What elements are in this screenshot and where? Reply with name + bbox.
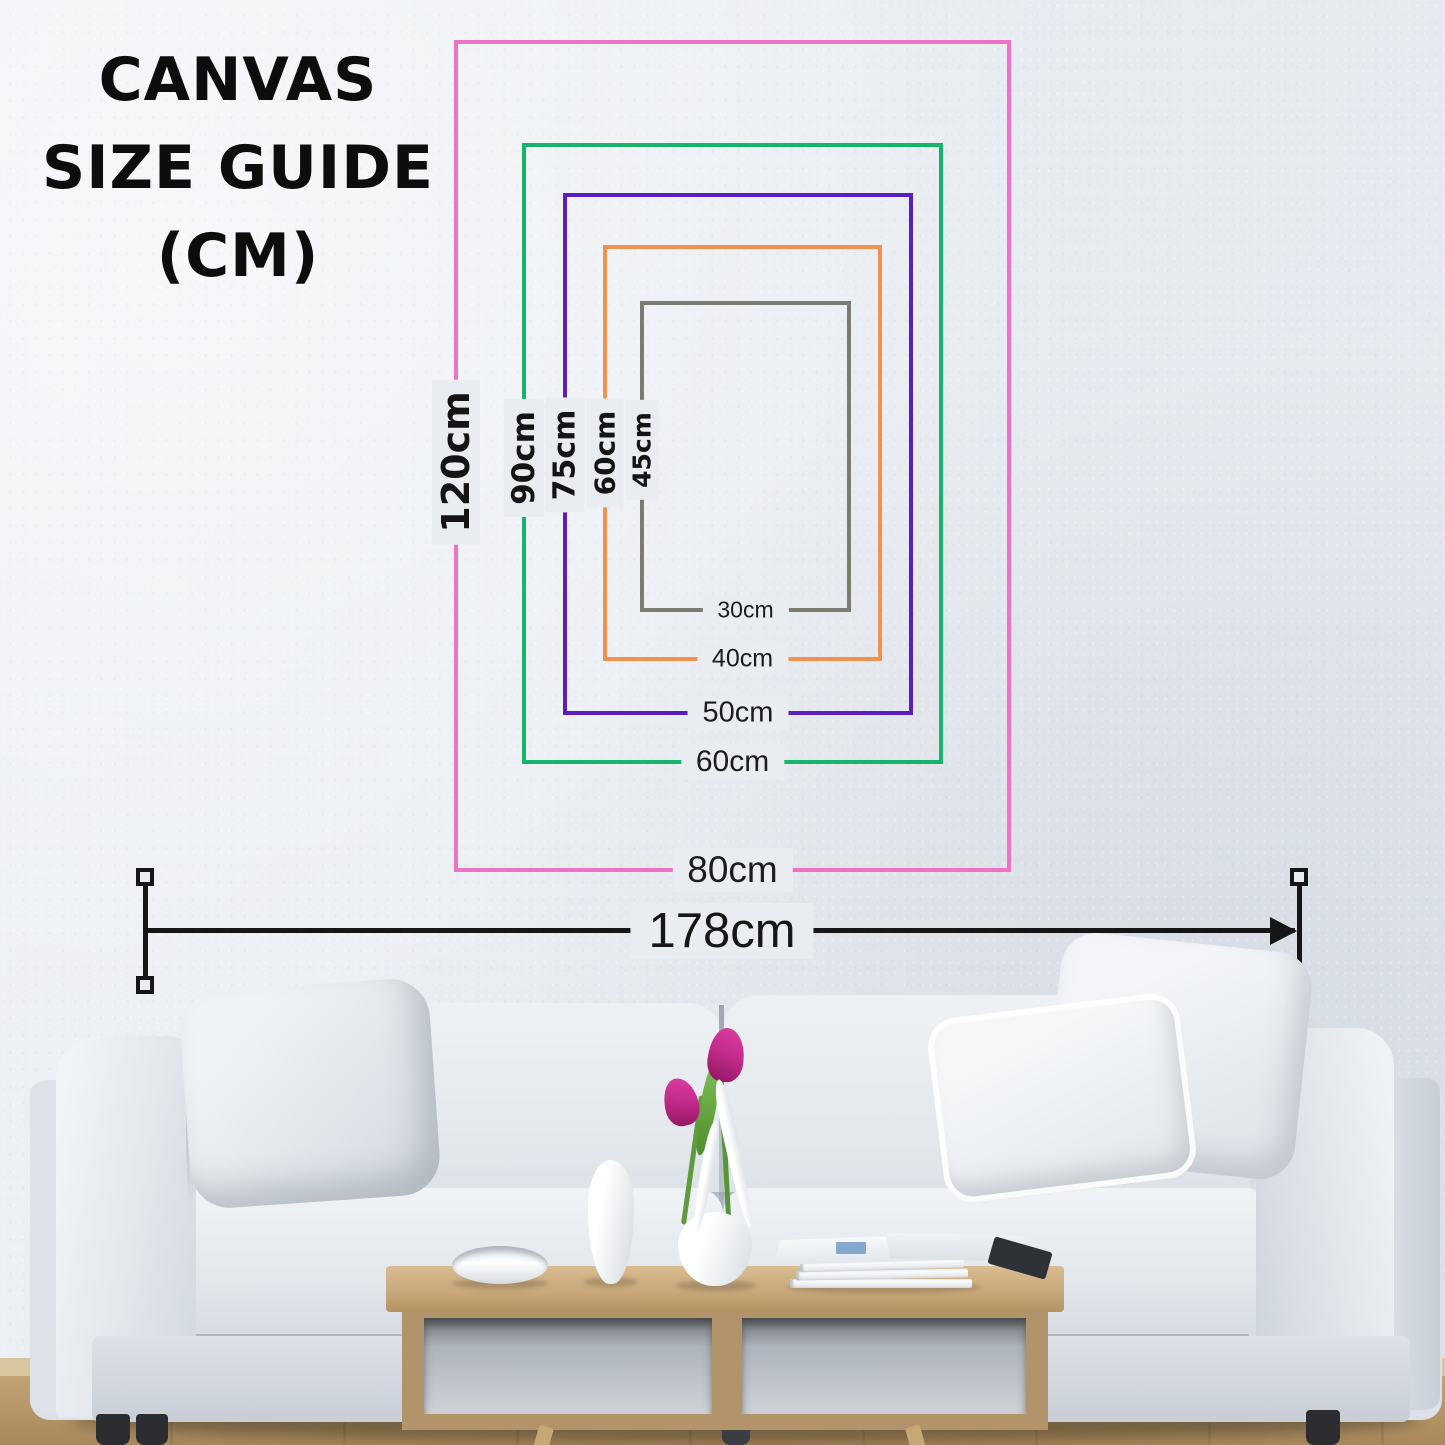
title-line-1: CANVAS (18, 36, 458, 124)
size-rectangle-45x30: 45cm 30cm (640, 301, 851, 612)
title-line-2: SIZE GUIDE (18, 124, 458, 212)
canvas-size-guide-infographic: CANVAS SIZE GUIDE (CM) 120cm 80cm 90cm 6… (0, 0, 1445, 1445)
sofa-leg (96, 1414, 130, 1445)
measure-endcap-square (1290, 868, 1308, 886)
sofa-leg (1306, 1410, 1340, 1445)
title-line-3: (CM) (18, 212, 458, 300)
throw-pillow-front-right (925, 990, 1200, 1206)
height-label: 90cm (504, 399, 544, 517)
sofa-width-value: 178cm (630, 903, 813, 959)
throw-pillow-left (178, 977, 443, 1211)
book (790, 1279, 972, 1288)
decorative-bowl (452, 1246, 548, 1284)
width-label: 30cm (702, 596, 788, 625)
coffee-table-shelf-box (402, 1312, 1048, 1430)
measure-arrow-icon (1270, 917, 1297, 945)
magazine-photo (836, 1242, 866, 1254)
measure-endcap-square (136, 868, 154, 886)
height-label: 75cm (546, 398, 585, 513)
measure-endcap-square (136, 976, 154, 994)
width-label: 40cm (697, 644, 788, 675)
measure-end-bar-left (143, 881, 148, 981)
shelf-opening-left (424, 1318, 712, 1414)
page-title: CANVAS SIZE GUIDE (CM) (18, 36, 458, 301)
width-label: 80cm (672, 848, 792, 892)
height-label: 120cm (432, 379, 480, 544)
shelf-opening-right (742, 1318, 1026, 1414)
height-label: 60cm (587, 399, 624, 508)
width-label: 50cm (688, 696, 789, 731)
height-label: 45cm (626, 400, 659, 500)
sofa-leg (136, 1414, 168, 1445)
width-label: 60cm (681, 744, 784, 780)
